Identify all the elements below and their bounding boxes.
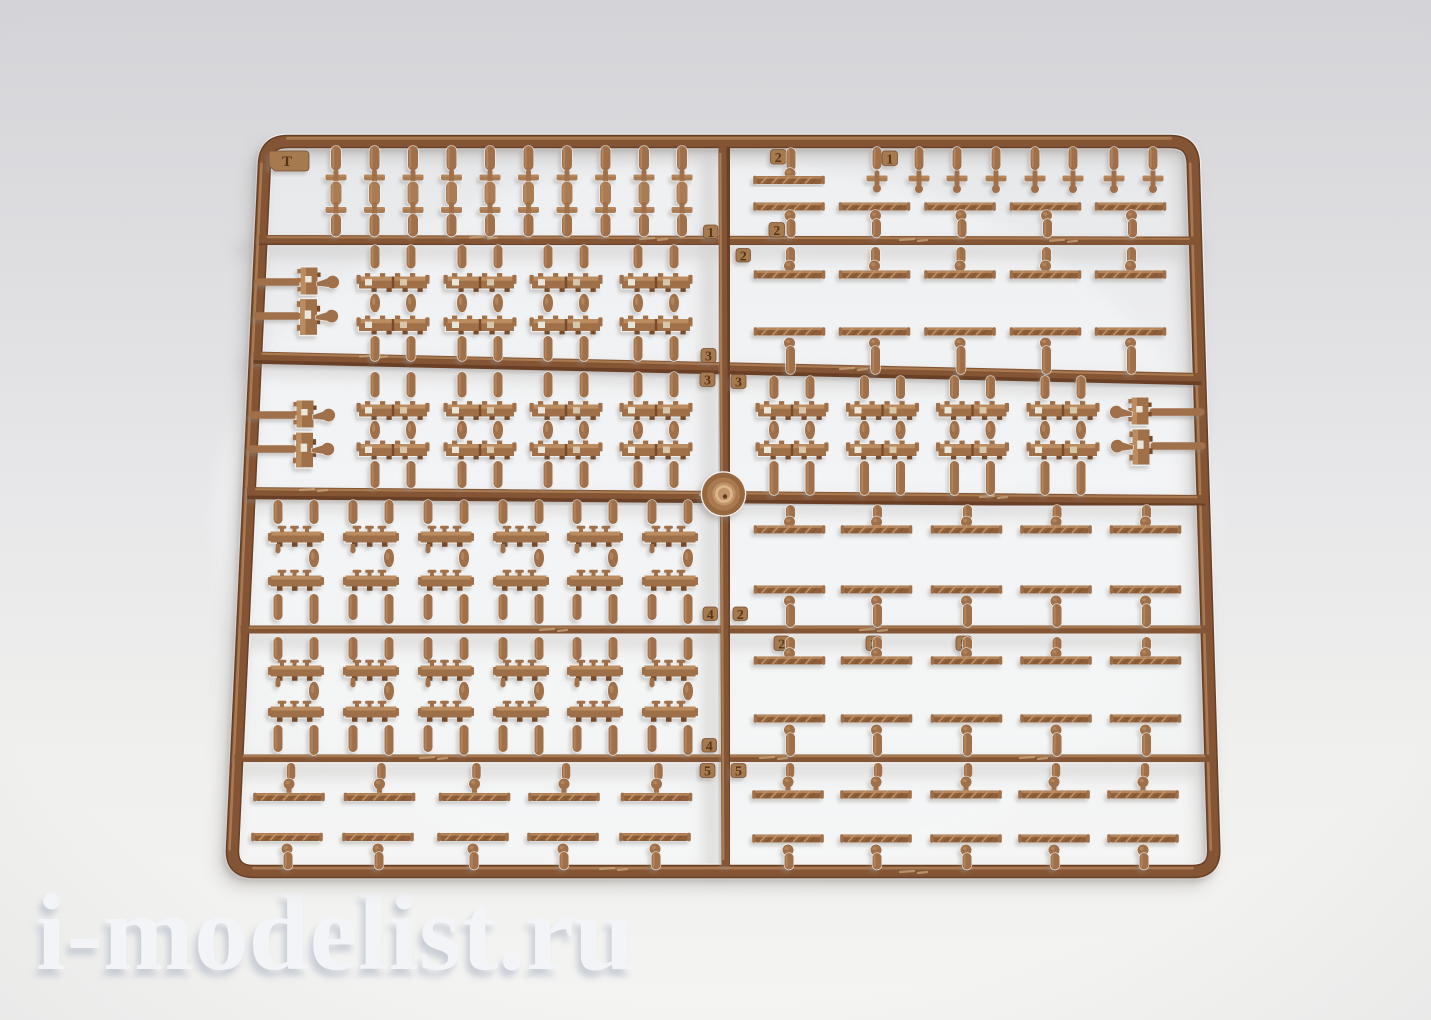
svg-text:1: 1 [886,152,893,167]
svg-text:i-modelist.ru: i-modelist.ru [36,872,635,993]
svg-text:T: T [282,154,292,170]
svg-text:1: 1 [707,226,714,241]
svg-text:3: 3 [705,350,712,365]
svg-text:2: 2 [775,151,782,166]
svg-text:4: 4 [707,608,714,623]
svg-text:5: 5 [735,765,742,780]
svg-text:5: 5 [704,765,711,780]
svg-text:2: 2 [778,637,785,652]
svg-text:3: 3 [704,374,711,389]
svg-text:2: 2 [737,608,744,623]
svg-text:3: 3 [735,376,742,391]
svg-text:4: 4 [706,739,713,754]
svg-text:2: 2 [740,249,747,264]
svg-text:2: 2 [773,224,780,239]
